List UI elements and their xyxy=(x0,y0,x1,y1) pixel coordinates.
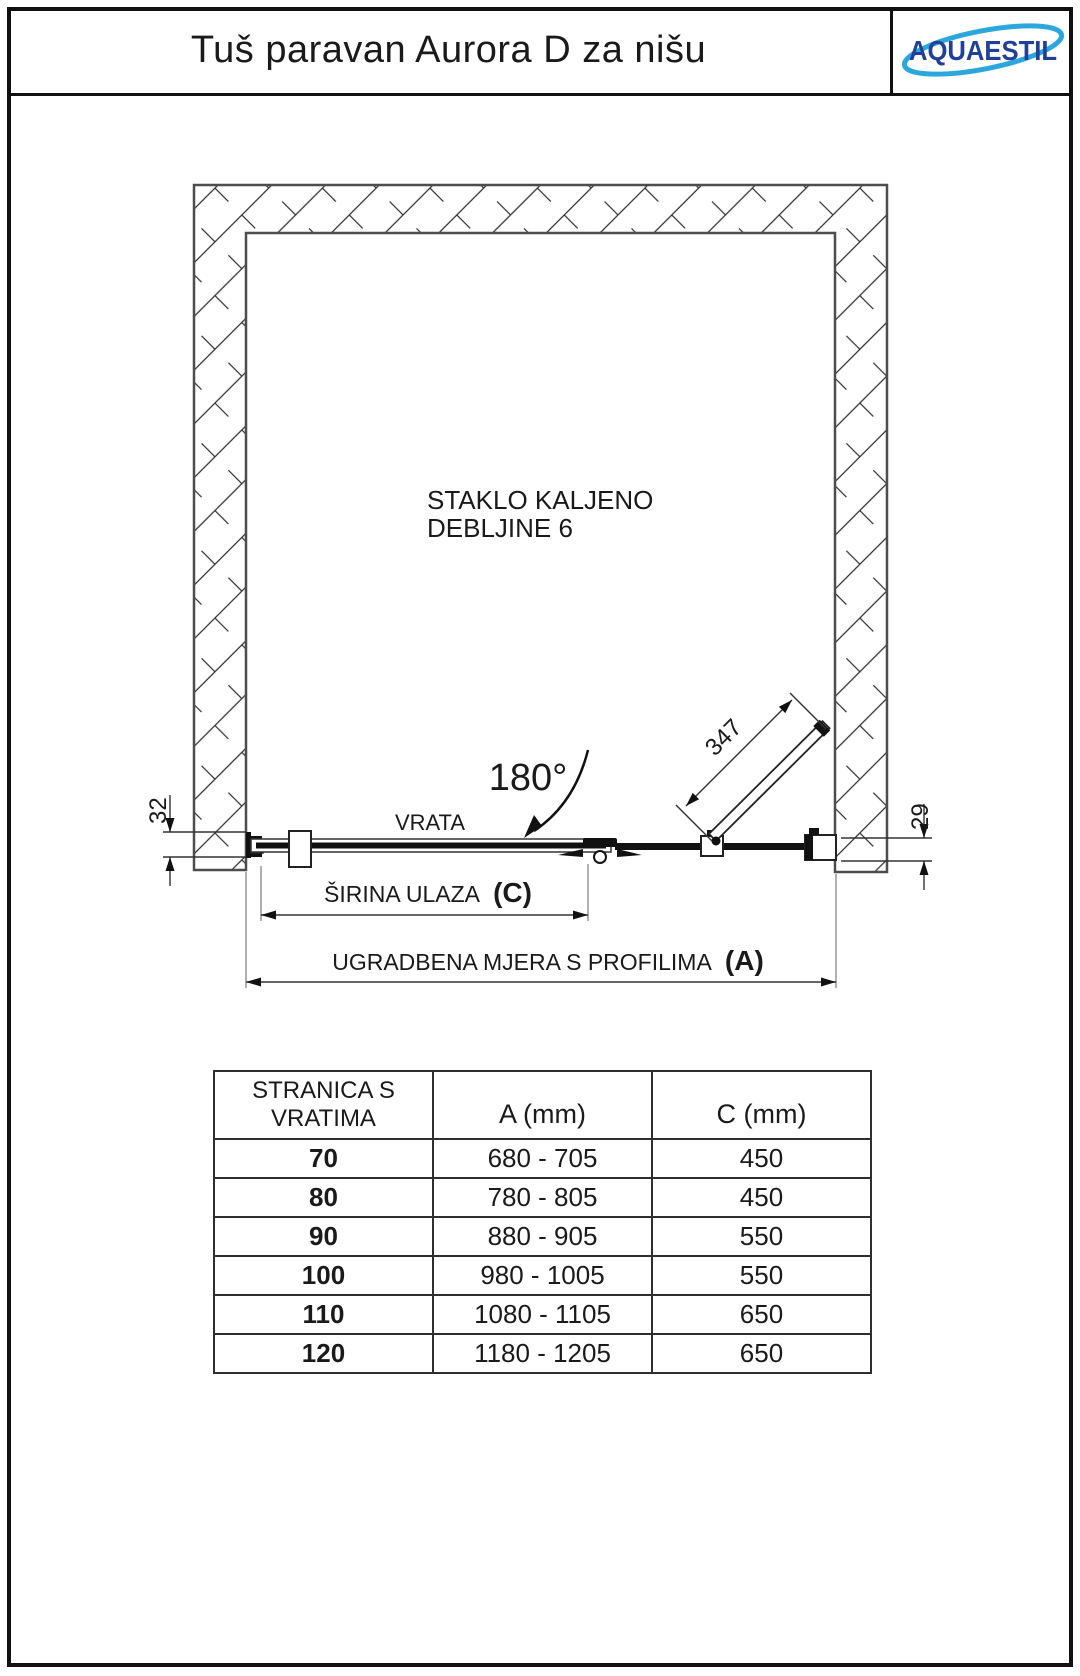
dim-install-label: UGRADBENA MJERA S PROFILIMA xyxy=(332,949,712,975)
title-cell: Tuš paravan Aurora D za nišu xyxy=(7,7,890,93)
cell-c: 550 xyxy=(652,1256,871,1295)
dim-29-value: 29 xyxy=(907,803,934,830)
dim-347-value: 347 xyxy=(700,714,747,761)
door-clamp-block xyxy=(289,831,311,867)
size-spec-table: STRANICA S VRATIMA A (mm) C (mm) 70 680 … xyxy=(213,1070,872,1374)
table-row: 120 1180 - 1205 650 xyxy=(214,1334,871,1373)
table-row: 70 680 - 705 450 xyxy=(214,1139,871,1178)
svg-text:UGRADBENA MJERA S PROFILIMA: UGRADBENA MJERA S PROFILIMA (A) xyxy=(332,945,764,976)
dim-entry-label: ŠIRINA ULAZA xyxy=(324,880,481,907)
table-row: 110 1080 - 1105 650 xyxy=(214,1295,871,1334)
logo-text: AQUAESTIL xyxy=(909,35,1057,66)
dim-32-value: 32 xyxy=(145,797,172,824)
cell-a: 880 - 905 xyxy=(433,1217,652,1256)
cell-a: 980 - 1005 xyxy=(433,1256,652,1295)
col-header-side: STRANICA S VRATIMA xyxy=(214,1071,433,1139)
svg-text:ŠIRINA ULAZA (C): ŠIRINA ULAZA (C) xyxy=(324,877,532,908)
title-block: Tuš paravan Aurora D za nišu AQUAESTIL xyxy=(7,7,1073,96)
table-row: 80 780 - 805 450 xyxy=(214,1178,871,1217)
aquaestil-logo: AQUAESTIL xyxy=(895,11,1071,89)
col-header-side-line1: STRANICA S xyxy=(215,1077,432,1105)
cell-size: 80 xyxy=(214,1178,433,1217)
pivot-pin xyxy=(712,837,721,846)
page-title: Tuš paravan Aurora D za nišu xyxy=(191,29,706,72)
dim-install-width: UGRADBENA MJERA S PROFILIMA (A) xyxy=(246,945,836,987)
dim-install-symbol: (A) xyxy=(725,945,764,976)
door-label: VRATA xyxy=(395,810,465,835)
glass-note-line1: STAKLO KALJENO xyxy=(427,485,653,515)
dim-347: 347 xyxy=(676,693,826,841)
cell-a: 780 - 805 xyxy=(433,1178,652,1217)
cell-c: 650 xyxy=(652,1295,871,1334)
cell-size: 90 xyxy=(214,1217,433,1256)
cell-c: 650 xyxy=(652,1334,871,1373)
cell-size: 100 xyxy=(214,1256,433,1295)
dim-entry-symbol: (C) xyxy=(493,877,532,908)
table-header-row: STRANICA S VRATIMA A (mm) C (mm) xyxy=(214,1071,871,1139)
col-header-side-line2: VRATIMA xyxy=(215,1105,432,1133)
cell-a: 1080 - 1105 xyxy=(433,1295,652,1334)
wall-profile-right xyxy=(805,828,836,860)
dim-entry-width: ŠIRINA ULAZA (C) xyxy=(261,877,588,920)
logo-cell: AQUAESTIL xyxy=(890,7,1073,93)
cell-size: 110 xyxy=(214,1295,433,1334)
col-header-c: C (mm) xyxy=(652,1071,871,1139)
cell-c: 450 xyxy=(652,1178,871,1217)
table-row: 100 980 - 1005 550 xyxy=(214,1256,871,1295)
glass-note-line2: DEBLJINE 6 xyxy=(427,513,573,543)
col-header-a: A (mm) xyxy=(433,1071,652,1139)
cell-size: 70 xyxy=(214,1139,433,1178)
cell-c: 450 xyxy=(652,1139,871,1178)
technical-drawing: STAKLO KALJENO DEBLJINE 6 VRATA 180° 32 xyxy=(0,0,1080,1010)
table-row: 90 880 - 905 550 xyxy=(214,1217,871,1256)
cell-size: 120 xyxy=(214,1334,433,1373)
cell-c: 550 xyxy=(652,1217,871,1256)
angle-label: 180° xyxy=(489,757,568,799)
drawing-sheet: Tuš paravan Aurora D za nišu AQUAESTIL xyxy=(0,0,1080,1676)
cell-a: 680 - 705 xyxy=(433,1139,652,1178)
cell-a: 1180 - 1205 xyxy=(433,1334,652,1373)
